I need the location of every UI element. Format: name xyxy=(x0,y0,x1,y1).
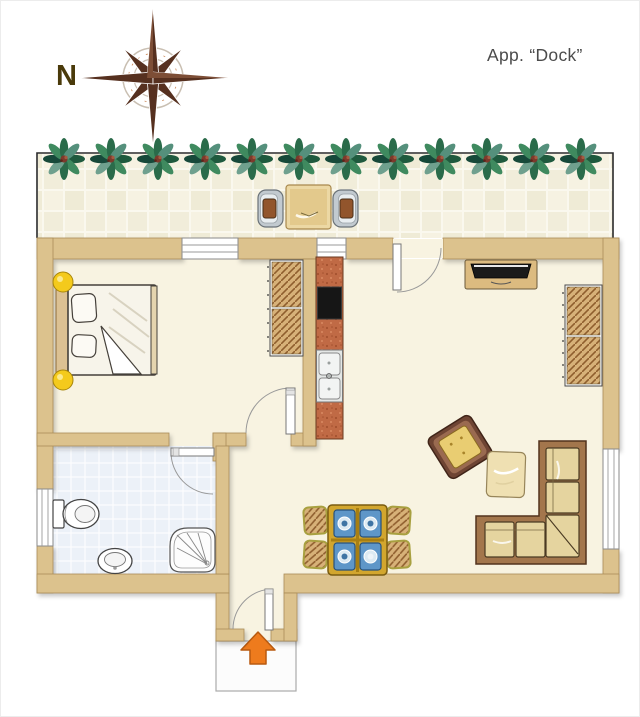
kitchen-counter xyxy=(316,257,343,439)
kitchenette xyxy=(316,257,343,439)
corner-shower xyxy=(170,528,215,572)
sofa-cushion xyxy=(516,522,545,557)
floor-plan-page: App. “Dock” N xyxy=(0,0,640,717)
floor-plan-drawing xyxy=(1,1,640,717)
dining-chair xyxy=(386,540,411,569)
compass-rose-icon xyxy=(78,9,228,147)
sofa-cushion xyxy=(546,482,579,513)
terrace-bistro-set xyxy=(258,185,358,229)
living-room-window xyxy=(603,449,619,549)
bedside-lamp-top xyxy=(53,272,73,292)
bedroom-window xyxy=(182,238,238,259)
terrace xyxy=(37,138,613,238)
bedside-lamp-bottom xyxy=(53,370,73,390)
cooktop xyxy=(318,287,342,319)
dining-chair xyxy=(386,506,411,535)
kitchen-sink xyxy=(317,350,343,402)
sofa-cushion xyxy=(485,522,514,557)
double-bed xyxy=(56,285,157,376)
pillow-bottom xyxy=(71,334,96,357)
coffee-table xyxy=(486,451,526,497)
terrace-chair-left xyxy=(258,190,283,227)
terrace-chair-right xyxy=(333,190,358,227)
pillow-top xyxy=(71,293,97,323)
shelf-unit xyxy=(562,285,602,386)
faucet-icon xyxy=(327,374,332,379)
dining-chair xyxy=(303,506,328,535)
toilet xyxy=(53,500,99,529)
dining-chair xyxy=(303,540,328,569)
compass-north-label: N xyxy=(56,60,77,93)
bidet xyxy=(98,549,132,574)
bedroom-wardrobe xyxy=(267,260,303,356)
sofa-cushion xyxy=(546,448,579,480)
tv-sideboard xyxy=(465,260,537,289)
kitchen-window xyxy=(317,238,346,259)
apartment-title: App. “Dock” xyxy=(487,45,583,66)
bathroom-window xyxy=(37,489,53,546)
